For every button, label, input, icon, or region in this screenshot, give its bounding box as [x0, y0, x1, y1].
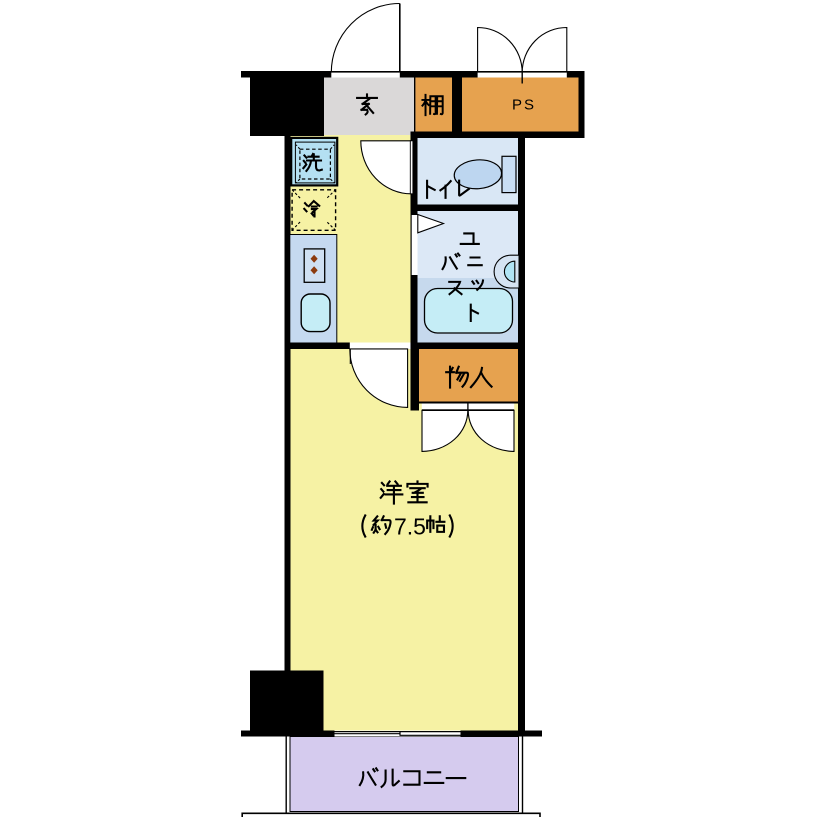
svg-text:PS: PS: [512, 97, 536, 114]
svg-text:7.5: 7.5: [394, 514, 426, 540]
